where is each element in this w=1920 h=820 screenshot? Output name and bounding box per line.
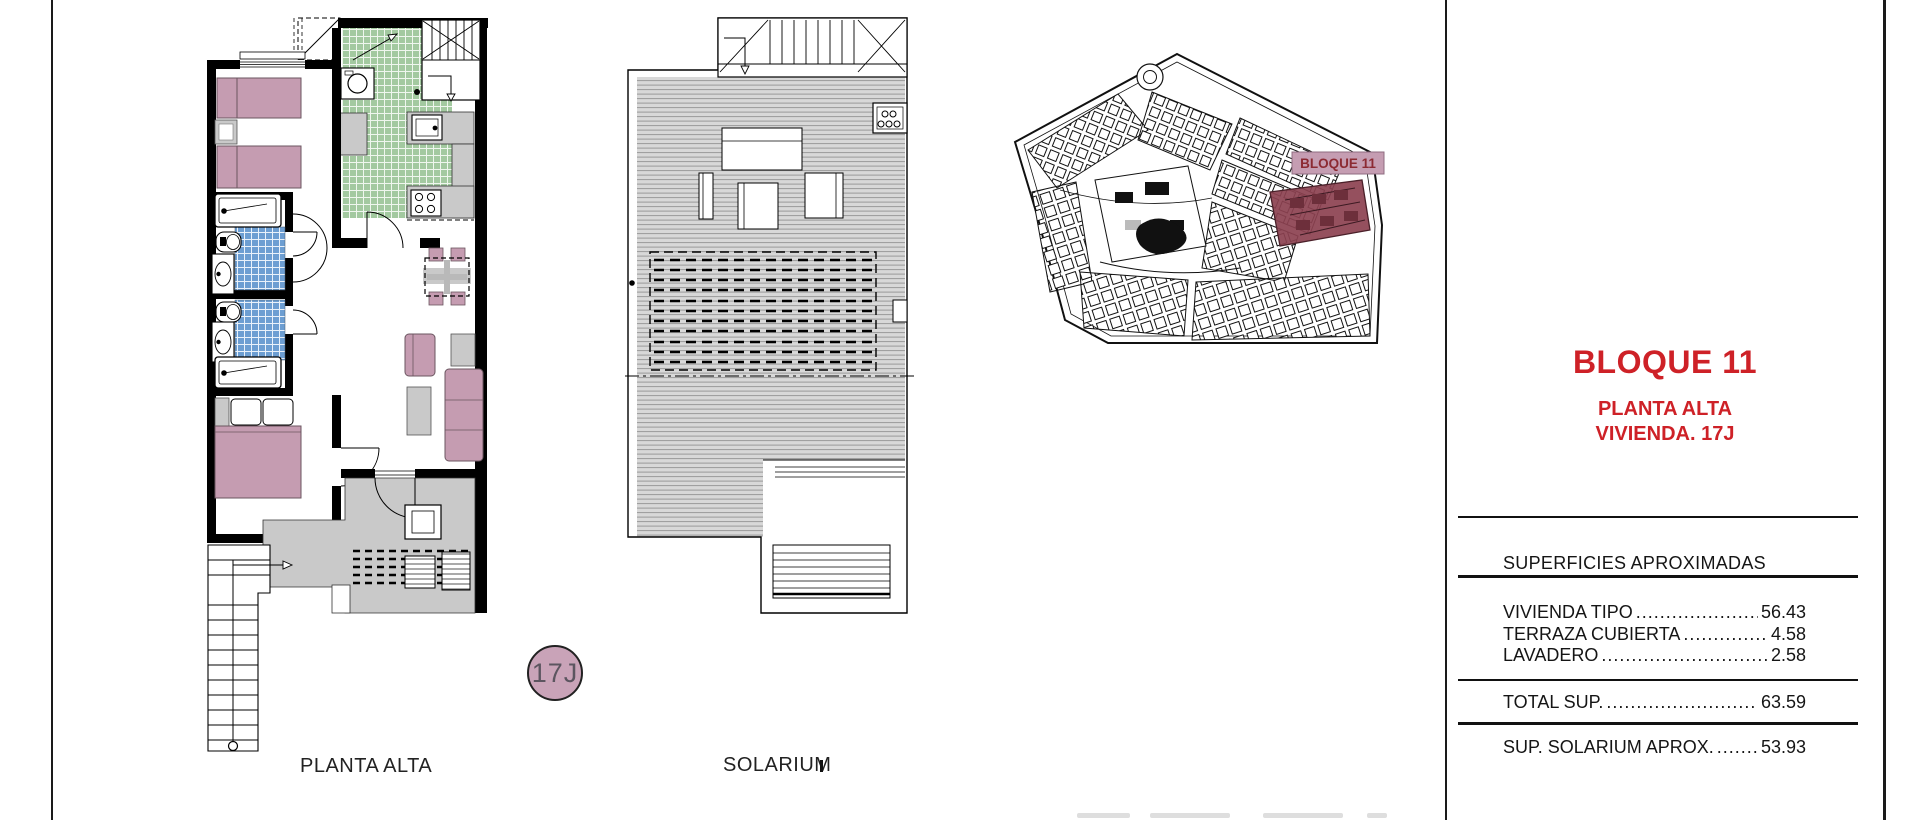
solarium-sup-leader: ...................................... [1717,737,1758,758]
floor-plan-label: PLANTA ALTA [300,755,420,778]
map-block-label-text: BLOQUE 11 [1300,156,1376,171]
surfaces-header: SUPERFICIES APROXIMADAS [1503,553,1766,574]
stray-mark [820,760,823,772]
total-label: TOTAL SUP. [1503,692,1603,713]
solarium-deck [628,18,907,613]
lower-terrace-stair [773,545,890,598]
row-leader: ...................................... [1683,624,1768,645]
sink-1 [212,254,234,294]
rule-top [1458,516,1858,518]
table-row: VIVIENDA TIPO ..........................… [1503,602,1806,624]
bathtub-2 [215,357,281,388]
solarium-sup-label: SUP. SOLARIUM APROX. [1503,737,1714,758]
row-value: 2.58 [1771,645,1806,666]
kitchen-sink [412,115,442,140]
cutoff-text-fragment [1150,813,1230,818]
rule-above-total [1458,679,1858,681]
stove [411,190,441,216]
surface-table: VIVIENDA TIPO ..........................… [1503,602,1806,667]
title-block-subheading: PLANTA ALTA VIVIENDA. 17J [1447,397,1883,447]
row-value: 56.43 [1761,602,1806,623]
bathtub-1 [215,194,281,227]
solarium-stairwell [718,18,907,77]
row-label: TERRAZA CUBIERTA [1503,624,1680,645]
cutoff-text-fragment [1263,813,1343,818]
table-row: TERRAZA CUBIERTA .......................… [1503,624,1806,646]
toilet-1 [216,232,241,252]
solarium-label: SOLARIUM [723,754,823,777]
bbq-unit [873,103,907,133]
bedroom-1 [215,78,301,188]
rule-below-total [1458,722,1858,725]
sheet-right-border [1883,0,1886,820]
washing-machine [341,68,374,99]
rule-under-header [1458,575,1858,578]
toilet-2 [216,302,241,322]
cutoff-text-fragment [1077,813,1130,818]
bedroom-window [240,52,305,69]
bloque-11-map-label: BLOQUE 11 [1292,152,1384,174]
dining-set [423,248,471,305]
solarium-row: SUP. SOLARIUM APROX. ...................… [1503,737,1806,759]
row-label: LAVADERO [1503,645,1598,666]
unit-badge-17j: 17J [527,645,583,701]
title-block-floor-line: PLANTA ALTA [1447,397,1883,422]
table-row: LAVADERO ...............................… [1503,645,1806,667]
title-block-heading: BLOQUE 11 [1447,344,1883,381]
bathroom-1 [212,194,317,294]
living-room [405,334,483,461]
row-leader: ...................................... [1601,645,1768,666]
cutoff-text-fragment [1367,813,1387,818]
bathroom-2 [212,300,317,388]
solarium-drawing [620,8,920,623]
total-row: TOTAL SUP. .............................… [1503,692,1806,714]
sink-2 [212,322,234,362]
interior-stair [414,20,480,101]
drawing-sheet: BLOQUE 11 PLANTA ALTA SOLARIUM 17J BLOQU… [0,0,1920,820]
sheet-left-border [51,0,53,820]
total-leader: ...................................... [1606,692,1758,713]
row-label: VIVIENDA TIPO [1503,602,1633,623]
total-value: 63.59 [1761,692,1806,713]
floor-plan-drawing [195,8,505,753]
row-value: 4.58 [1771,624,1806,645]
site-map: BLOQUE 11 [1000,30,1400,360]
title-block-unit-line: VIVIENDA. 17J [1447,422,1883,447]
row-leader: ...................................... [1636,602,1758,623]
solarium-sup-value: 53.93 [1761,737,1806,758]
ac-unit [405,505,441,539]
